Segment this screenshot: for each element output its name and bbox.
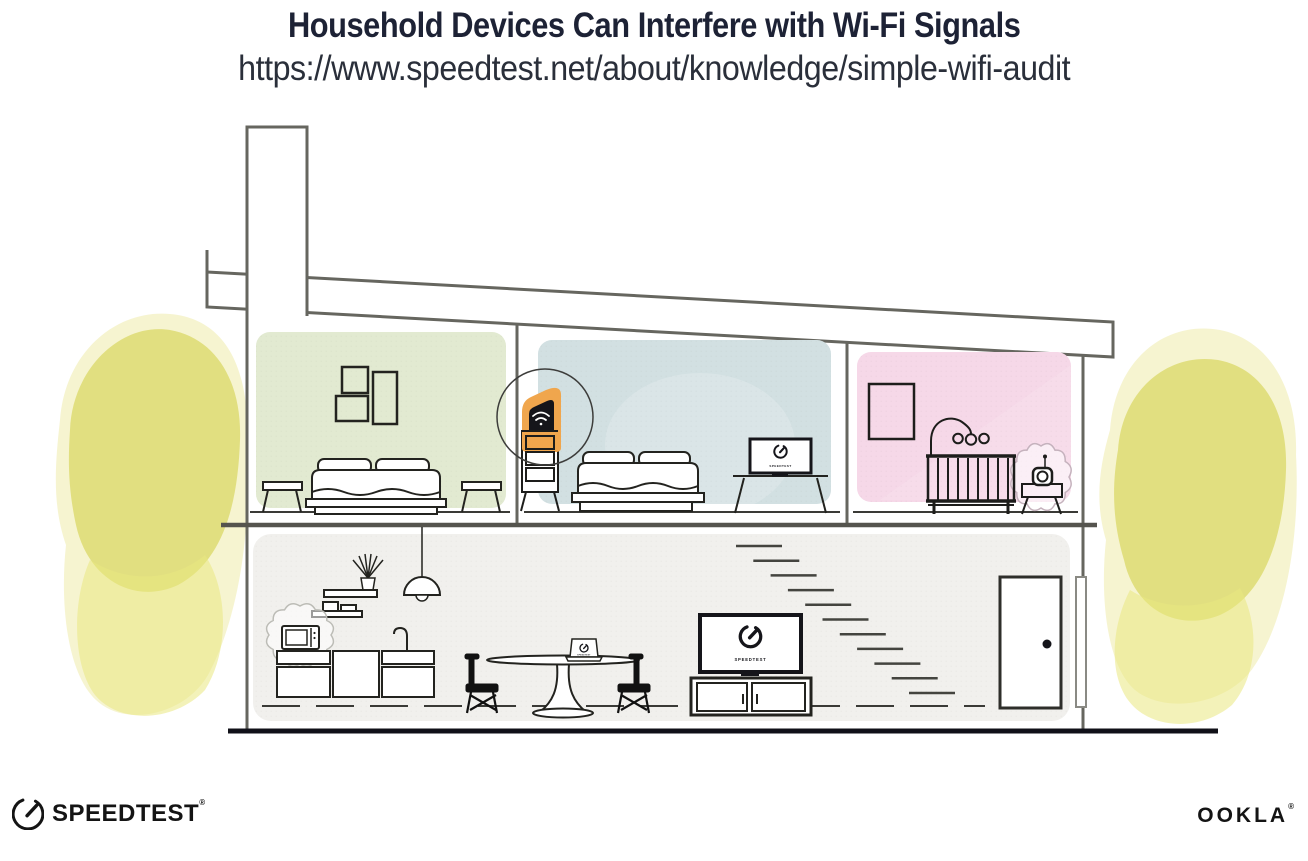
ookla-logo: OOKLA® [1197, 804, 1297, 828]
ookla-wordmark: OOKLA® [1197, 804, 1297, 827]
source-url: https://www.speedtest.net/about/knowledg… [238, 50, 1070, 88]
bedroom-tv-screen-label: SPEEDTEST [769, 464, 791, 468]
cup [323, 602, 338, 611]
speedtest-logo: SPEEDTEST® [12, 798, 206, 830]
bedroom-tv: SPEEDTEST [750, 439, 811, 477]
bed-green [306, 459, 446, 514]
monitor-antenna-tip [1043, 455, 1047, 459]
tree-left [56, 314, 248, 716]
laptop: SPEEDTEST [566, 639, 602, 661]
living-tv [700, 615, 801, 672]
door-side-panel [1076, 577, 1086, 707]
page-title: Household Devices Can Interfere with Wi-… [288, 6, 1020, 46]
speedtest-gauge-icon [12, 798, 44, 830]
speedtest-reg-mark: ® [199, 798, 205, 807]
header: Household Devices Can Interfere with Wi-… [0, 6, 1308, 88]
chimney [247, 127, 307, 316]
media-console [691, 678, 811, 715]
living-tv-screen-label: SPEEDTEST [734, 657, 766, 662]
house-illustration: SPEEDTEST [0, 0, 1308, 861]
speedtest-wordmark: SPEEDTEST® [52, 800, 206, 828]
ookla-reg-mark: ® [1288, 802, 1297, 811]
living-tv-group: SPEEDTEST [691, 615, 811, 715]
door-knob [1043, 640, 1052, 649]
microwave [282, 626, 319, 649]
tree-right [1099, 328, 1296, 723]
front-door [1000, 577, 1061, 708]
laptop-screen-label: SPEEDTEST [577, 655, 591, 657]
